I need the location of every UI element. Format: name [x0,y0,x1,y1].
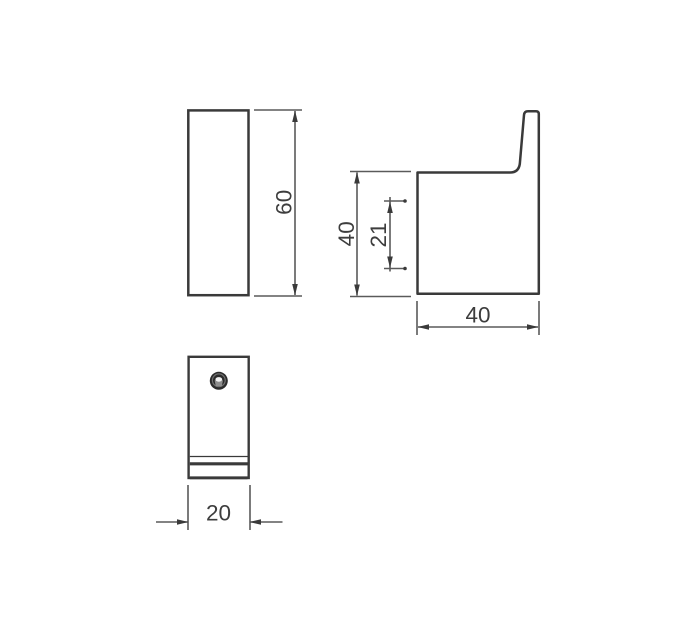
svg-text:20: 20 [206,501,231,526]
svg-text:40: 40 [465,303,490,328]
svg-text:21: 21 [366,222,391,247]
svg-text:60: 60 [272,190,297,215]
svg-text:40: 40 [334,221,359,246]
